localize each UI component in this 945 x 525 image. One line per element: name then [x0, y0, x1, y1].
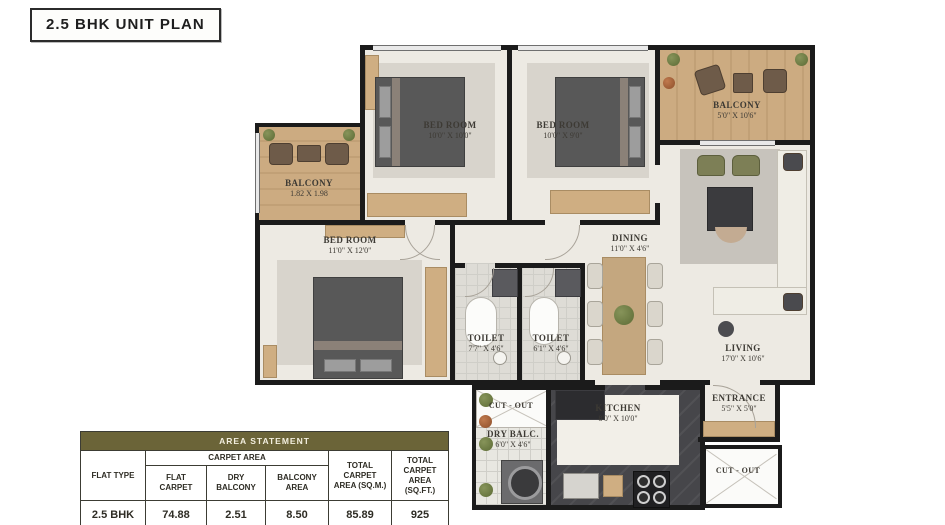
wall-living-right: [810, 140, 815, 385]
col-total-sqft: TOTAL CARPET AREA (SQ.FT.): [392, 451, 449, 501]
toilet2-dim: 6'1" X 4'6": [533, 344, 568, 354]
balcony-left-dim: 1.82 X 1.98: [290, 189, 328, 199]
table-header: AREA STATEMENT: [81, 432, 449, 451]
col-balcony-area: BALCONY AREA: [266, 466, 329, 501]
dining-chair-l2: [587, 301, 603, 327]
col-dry-balcony: DRY BALCONY: [207, 466, 266, 501]
bedroom1-wardrobe: [367, 193, 467, 217]
balcony-top-plant-orange: [663, 77, 675, 89]
entrance-dim: 5'5" X 5'0": [721, 404, 756, 414]
kitchen-stove: [633, 471, 670, 508]
balcony-left-plant2: [343, 129, 355, 141]
value-dry-balcony: 2.51: [207, 501, 266, 525]
wall-entrance-bottom: [698, 437, 780, 442]
dining-name: DINING: [612, 233, 648, 244]
kitchen-label: KITCHEN 8'0" X 10'0": [568, 403, 668, 423]
wall-kitchen-top-b: [645, 385, 705, 390]
toilet1-shower: [492, 269, 518, 297]
dining-chair-l1: [587, 263, 603, 289]
living-side-table2: [783, 293, 803, 311]
living-name: LIVING: [725, 343, 760, 354]
balcony-top-chair2: [763, 69, 787, 93]
value-flat-carpet: 74.88: [146, 501, 207, 525]
bedroom3-side-unit: [263, 345, 277, 378]
value-flat-type: 2.5 BHK: [81, 501, 146, 525]
dining-chair-r1: [647, 263, 663, 289]
bedroom3-dim: 11'0" X 12'0": [329, 246, 372, 256]
dining-label: DINING 11'0" X 4'6": [580, 233, 680, 253]
kitchen-dim: 8'0" X 10'0": [598, 414, 637, 424]
dining-chair-r3: [647, 339, 663, 365]
col-flat-type: FLAT TYPE: [81, 451, 146, 501]
balcony-top-name: BALCONY: [713, 100, 761, 111]
entrance-label: ENTRANCE 5'5" X 5'0": [689, 393, 789, 413]
balcony-top-plant-left: [667, 53, 680, 66]
wall-bed2-bottom-b: [580, 220, 660, 225]
living-armchair2: [732, 155, 760, 176]
bedroom2-wardrobe: [550, 190, 650, 214]
dry-balcony-label: DRY BALC. 6'0" X 4'6": [463, 429, 563, 449]
wall-balcony-top-right: [810, 45, 815, 145]
area-statement-table: AREA STATEMENT FLAT TYPE CARPET AREA TOT…: [80, 431, 449, 525]
living-coffee-table: [707, 187, 753, 231]
cutout-bottom-label: CUT - OUT: [688, 466, 788, 476]
bedroom1-dim: 10'0" X 10'0": [428, 131, 471, 141]
value-total-sqm: 85.89: [329, 501, 392, 525]
wall-balcony-living-a: [660, 140, 700, 145]
cutout-bottom-box: [702, 445, 782, 508]
cutout-bottom-name: CUT - OUT: [716, 466, 760, 476]
dry-balcony-plant2: [479, 415, 492, 428]
dry-balcony-name: DRY BALC.: [487, 429, 539, 440]
living-floor-lamp: [718, 321, 734, 337]
col-carpet-area: CARPET AREA: [146, 451, 329, 466]
cutout-top-name: CUT - OUT: [489, 401, 533, 411]
bedroom1-window: [373, 45, 501, 51]
balcony-left-name: BALCONY: [285, 178, 333, 189]
dry-balcony-plant4: [479, 483, 493, 497]
bedroom1-label: BED ROOM 10'0" X 10'0": [400, 120, 500, 140]
kitchen-sink: [563, 473, 599, 499]
living-sofa-vertical: [777, 150, 807, 310]
living-label: LIVING 17'0" X 10'6": [693, 343, 793, 363]
wall-balcony-left-top: [255, 123, 362, 127]
balcony-left-chair1: [269, 143, 293, 165]
balcony-left-window: [255, 133, 260, 213]
balcony-left-table: [297, 145, 321, 162]
balcony-top-plant-right: [795, 53, 808, 66]
cutout-top-label: CUT - OUT: [461, 401, 561, 411]
bedroom3-name: BED ROOM: [324, 235, 377, 246]
value-total-sqft: 925: [392, 501, 449, 525]
sliding-door-living-balcony: [700, 140, 775, 146]
balcony-left-plant1: [263, 129, 275, 141]
col-flat-carpet: FLAT CARPET: [146, 466, 207, 501]
toilet1-dim: 7'7" X 4'6": [468, 344, 503, 354]
balcony-top-floor: [660, 45, 815, 145]
living-side-table1: [783, 153, 803, 171]
bedroom2-label: BED ROOM 10'0" X 9'0": [513, 120, 613, 140]
toilet2-name: TOILET: [533, 333, 570, 344]
bedroom3-wardrobe: [425, 267, 447, 377]
value-balcony-area: 8.50: [266, 501, 329, 525]
bedroom2-dim: 10'0" X 9'0": [543, 131, 582, 141]
bedroom3-label: BED ROOM 11'0" X 12'0": [300, 235, 400, 255]
balcony-left-chair2: [325, 143, 349, 165]
balcony-top-label: BALCONY 5'0" X 10'6": [687, 100, 787, 120]
balcony-top-table: [733, 73, 753, 93]
toilet2-shower: [555, 269, 581, 297]
dining-dim: 11'0" X 4'6": [611, 244, 650, 254]
wall-bed3-right: [450, 225, 455, 385]
balcony-top-dim: 5'0" X 10'6": [717, 111, 756, 121]
bedroom1-name: BED ROOM: [424, 120, 477, 131]
bedroom2-name: BED ROOM: [537, 120, 590, 131]
wall-bed1-bed2: [507, 45, 512, 225]
wall-living-bottom-a: [660, 380, 710, 385]
wall-bed2-bottom-a: [507, 220, 545, 225]
wall-bed3-left: [255, 220, 260, 385]
living-dim: 17'0" X 10'6": [721, 354, 764, 364]
washing-machine: [501, 460, 543, 504]
dining-chair-r2: [647, 301, 663, 327]
floor-plan-sheet: 2.5 BHK UNIT PLAN: [0, 0, 945, 525]
col-total-sqm: TOTAL CARPET AREA (SQ.M.): [329, 451, 392, 501]
plan-title-box: 2.5 BHK UNIT PLAN: [30, 8, 221, 42]
toilet2-label: TOILET 6'1" X 4'6": [501, 333, 601, 353]
plan-title: 2.5 BHK UNIT PLAN: [46, 16, 205, 33]
balcony-left-label: BALCONY 1.82 X 1.98: [259, 178, 359, 198]
wall-toilets-top-a: [455, 263, 465, 268]
entrance-name: ENTRANCE: [712, 393, 766, 404]
wall-bed2-right: [655, 45, 660, 165]
dry-balcony-dim: 6'0" X 4'6": [495, 440, 530, 450]
dining-centerpiece: [614, 305, 634, 325]
wall-living-bottom-b: [760, 380, 815, 385]
kitchen-cutting-board: [603, 475, 623, 497]
kitchen-name: KITCHEN: [595, 403, 640, 414]
bedroom3-bed: [313, 277, 403, 379]
wall-bottom-kitchen: [472, 505, 705, 510]
bedroom2-window: [518, 45, 648, 51]
wall-balcony-living-b: [775, 140, 815, 145]
toilet1-name: TOILET: [468, 333, 505, 344]
living-armchair1: [697, 155, 725, 176]
